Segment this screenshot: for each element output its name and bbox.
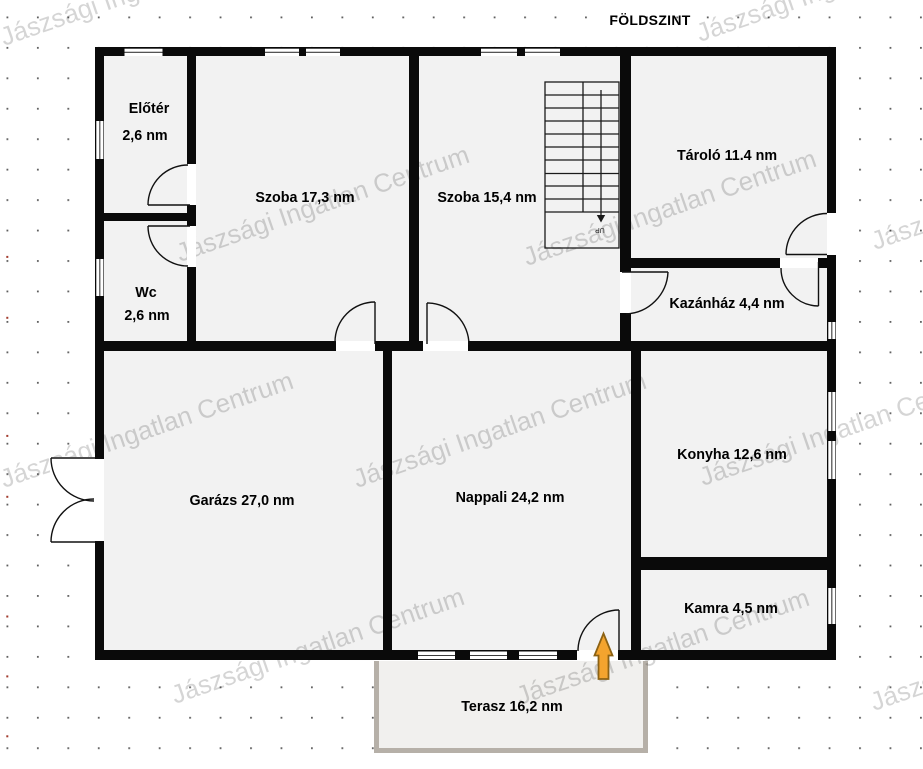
svg-text:Konyha 12,6 nm: Konyha 12,6 nm: [677, 447, 787, 463]
svg-text:FÖLDSZINT: FÖLDSZINT: [609, 12, 690, 28]
svg-text:2,6 nm: 2,6 nm: [122, 128, 167, 144]
svg-text:Tároló 11.4 nm: Tároló 11.4 nm: [677, 148, 777, 164]
svg-text:Kazánház 4,4 nm: Kazánház 4,4 nm: [669, 296, 784, 312]
svg-text:Wc: Wc: [135, 285, 156, 301]
svg-text:Szoba 15,4 nm: Szoba 15,4 nm: [437, 190, 536, 206]
svg-text:Terasz 16,2 nm: Terasz 16,2 nm: [461, 699, 562, 715]
svg-text:Garázs 27,0 nm: Garázs 27,0 nm: [190, 493, 295, 509]
svg-text:2,6 nm: 2,6 nm: [124, 308, 169, 324]
svg-text:UP: UP: [595, 226, 605, 233]
svg-text:Nappali 24,2 nm: Nappali 24,2 nm: [456, 490, 565, 506]
svg-text:Szoba 17,3 nm: Szoba 17,3 nm: [255, 190, 354, 206]
svg-text:Előtér: Előtér: [129, 101, 170, 117]
svg-text:Kamra 4,5 nm: Kamra 4,5 nm: [684, 601, 778, 617]
